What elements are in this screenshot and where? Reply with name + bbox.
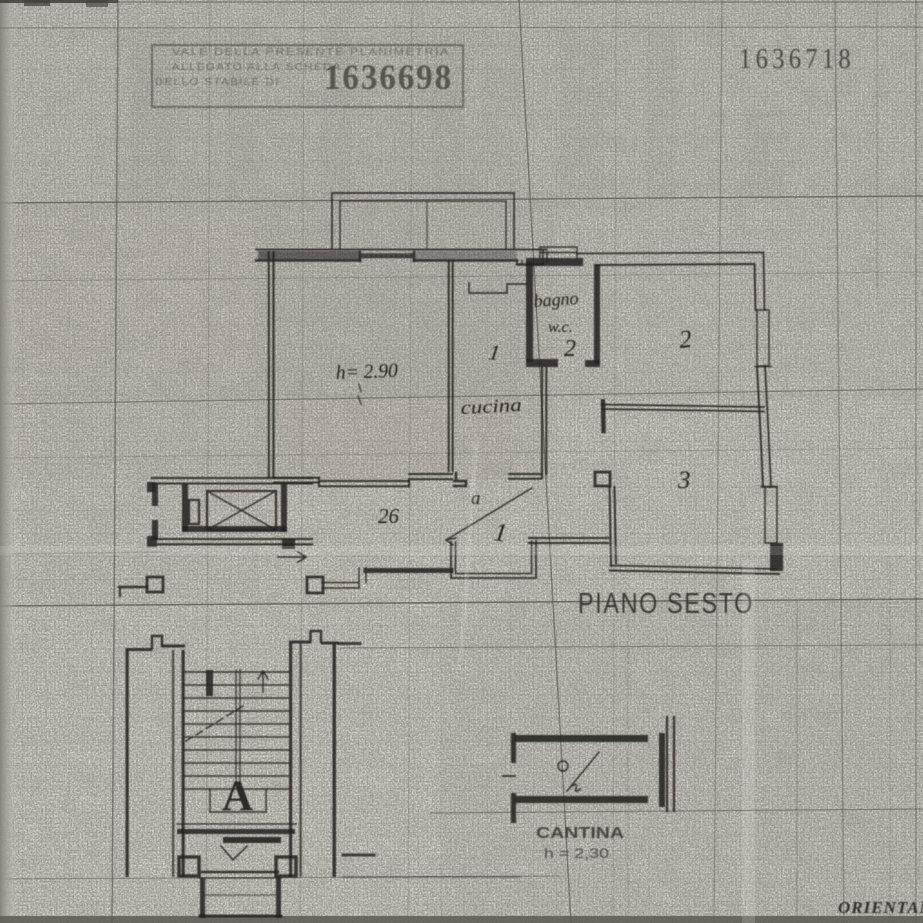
svg-text:PIANO SESTO: PIANO SESTO: [578, 588, 754, 620]
svg-text:2: 2: [564, 336, 576, 362]
svg-text:w.c.: w.c.: [548, 319, 573, 336]
svg-text:h = 2,30: h = 2,30: [544, 845, 609, 861]
svg-text:h= 2.90: h= 2.90: [335, 360, 398, 384]
svg-text:DELLO STABILE DI: DELLO STABILE DI: [155, 76, 280, 88]
svg-text:1636718: 1636718: [739, 43, 855, 75]
svg-text:cucina: cucina: [460, 395, 522, 419]
svg-text:A: A: [222, 773, 253, 820]
svg-text:1636698: 1636698: [324, 57, 453, 97]
svg-text:bagno: bagno: [533, 288, 579, 311]
svg-text:ALLEGATO ALLA SCHEDA: ALLEGATO ALLA SCHEDA: [172, 61, 342, 73]
svg-text:26: 26: [378, 504, 400, 528]
svg-text:3: 3: [677, 467, 691, 494]
svg-text:CANTINA: CANTINA: [536, 825, 625, 842]
svg-text:ORIENTAME: ORIENTAME: [838, 898, 923, 917]
